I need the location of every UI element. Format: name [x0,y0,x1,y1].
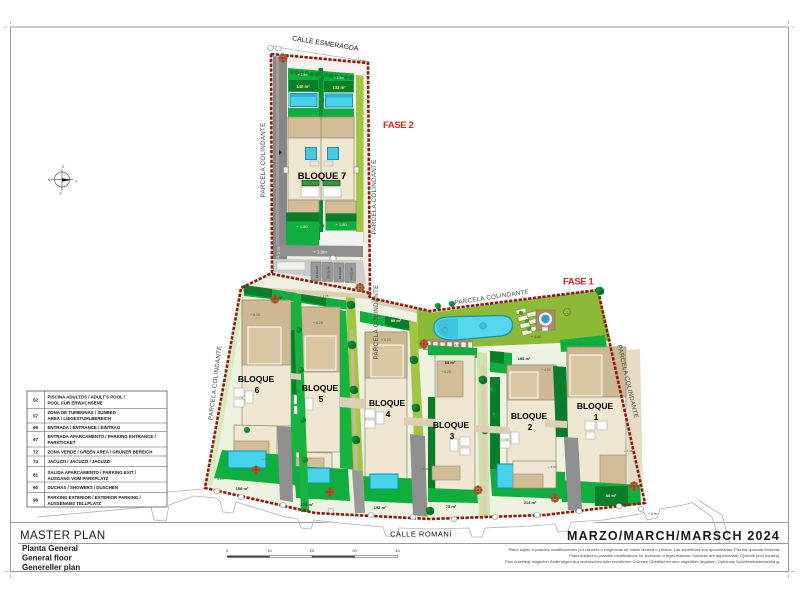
svg-text:PARKTICKET: PARKTICKET [48,440,76,445]
svg-text:6: 6 [255,385,260,395]
svg-text:2: 2 [528,422,533,432]
svg-text:BLOQUE: BLOQUE [238,374,275,384]
svg-text:BLOQUE: BLOQUE [369,398,406,408]
svg-text:57: 57 [33,414,39,419]
svg-text:MASTER PLAN: MASTER PLAN [20,530,106,542]
svg-text:+ 5.00: + 5.00 [420,467,429,471]
svg-text:Plans subject to possible modi: Plans subject to possible modifications … [569,553,780,558]
svg-text:AUSGANG VOM PARKPLATZ: AUSGANG VOM PARKPLATZ [48,476,109,481]
svg-text:E: E [75,180,78,184]
svg-text:+ 5.44: + 5.44 [624,449,633,453]
svg-text:72: 72 [565,311,569,315]
svg-text:+ 5.00: + 5.00 [548,465,557,469]
svg-text:CALLE ESMERAGDA: CALLE ESMERAGDA [292,35,360,52]
svg-text:PISCINA ADULTOS / ADULT'S POO: PISCINA ADULTOS / ADULT'S POOL / [48,395,126,400]
svg-text:Genereller plan: Genereller plan [22,563,80,572]
svg-text:75 m²: 75 m² [446,504,457,509]
svg-text:JACUZZI / JACUZZI / JACUZZI: JACUZZI / JACUZZI / JACUZZI [48,459,111,464]
svg-text:5: 5 [319,394,324,404]
svg-text:1: 1 [594,412,599,422]
svg-text:SALIDA APARCAMENTO / PARKING E: SALIDA APARCAMENTO / PARKING EXIT / [48,470,137,475]
svg-text:+ 6.25: + 6.25 [381,338,391,342]
svg-text:+ 3.0m: + 3.0m [313,250,327,255]
svg-text:ENTRADA / ENTRANCE / EINTRAG: ENTRADA / ENTRANCE / EINTRAG [48,425,121,430]
svg-text:+ 4.40: + 4.40 [531,335,541,339]
svg-text:N: N [48,178,51,182]
svg-text:4: 4 [386,409,391,419]
svg-text:DUCHAS / SHOWERS / DUSCHEN: DUCHAS / SHOWERS / DUSCHEN [48,485,119,490]
svg-text:86 m²: 86 m² [606,493,617,498]
svg-text:CALLE ROMANÍ: CALLE ROMANÍ [390,530,452,539]
svg-text:158 m²: 158 m² [236,486,249,491]
svg-text:+ 6.25: + 6.25 [313,321,323,325]
svg-text:BLOQUE: BLOQUE [511,411,548,421]
svg-text:66: 66 [33,425,39,430]
svg-text:BLOQUE: BLOQUE [577,401,614,411]
svg-text:AUSSENABS TELLPLATZ: AUSSENABS TELLPLATZ [48,501,102,506]
svg-text:30: 30 [352,548,357,553]
svg-text:99 m²: 99 m² [391,318,402,323]
svg-text:Planta General: Planta General [22,544,78,553]
svg-text:96: 96 [33,498,39,503]
svg-text:BLOQUE: BLOQUE [302,383,339,393]
svg-text:APTO 03: APTO 03 [338,267,342,280]
svg-text:+ 5.00: + 5.00 [214,477,224,481]
svg-text:PARCELA COLINDANTE: PARCELA COLINDANTE [373,284,380,359]
svg-text:AREA / LIEGESTUHLBEREICH: AREA / LIEGESTUHLBEREICH [48,416,112,421]
svg-text:+ 1.5m: + 1.5m [334,76,344,80]
svg-text:178 m²: 178 m² [301,502,314,507]
svg-text:+ 4.25: + 4.25 [320,294,329,298]
svg-text:ENTRADA APARCAMENTO / PARKING: ENTRADA APARCAMENTO / PARKING ENTRANCE / [48,434,157,439]
svg-text:214 m²: 214 m² [524,500,537,505]
svg-text:BLOQUE: BLOQUE [433,420,470,430]
svg-text:67: 67 [33,437,39,442]
svg-text:+ 4.40: + 4.40 [452,343,461,347]
svg-text:+ 5.17: + 5.17 [300,508,309,512]
svg-text:90: 90 [33,485,39,490]
svg-text:PARCELA COLINDANTE: PARCELA COLINDANTE [371,159,378,234]
svg-text:+ 4.90: + 4.90 [541,368,551,372]
svg-text:74: 74 [33,459,39,464]
svg-text:+ 6.25: + 6.25 [250,313,260,317]
svg-text:133 m²: 133 m² [332,85,346,90]
svg-text:40: 40 [395,548,400,553]
svg-text:PARCELA COLINDANTE: PARCELA COLINDANTE [260,122,267,197]
svg-text:APTO 04: APTO 04 [350,267,354,280]
svg-text:Plan unterliegt möglicher Ände: Plan unterliegt möglicher Änderungen aus… [505,559,780,564]
svg-text:+ 1.5m: + 1.5m [298,73,308,77]
svg-text:+ 3.75: + 3.75 [277,247,281,258]
svg-text:20: 20 [310,548,315,553]
svg-text:PARKING EXTERIOR / EXTERIOR PA: PARKING EXTERIOR / EXTERIOR PARKING / [48,495,142,500]
svg-text:APTO 01: APTO 01 [315,266,319,279]
svg-text:S: S [59,192,62,196]
svg-text:POOL FÜR ERWACHSENE: POOL FÜR ERWACHSENE [48,401,103,406]
svg-text:+ 5.06: + 5.06 [338,469,347,473]
svg-text:64 m²: 64 m² [445,360,456,365]
svg-text:+ 4.27: + 4.27 [262,457,271,461]
svg-text:FASE 1: FASE 1 [563,277,594,288]
svg-text:FASE 2: FASE 2 [383,120,413,131]
svg-text:+ 1.50: + 1.50 [335,222,347,227]
svg-text:O: O [62,165,65,169]
svg-text:140 m²: 140 m² [296,84,310,89]
svg-text:ZONA DE TUMBONAS / SUNBED: ZONA DE TUMBONAS / SUNBED [48,410,116,415]
svg-text:+ 6.25: + 6.25 [441,370,451,374]
svg-text:General floor: General floor [22,554,72,563]
svg-text:+ 4.25: + 4.25 [256,288,265,292]
svg-text:+ 1.50: + 1.50 [296,224,308,229]
svg-text:3: 3 [450,431,455,441]
svg-text:72: 72 [33,450,39,455]
svg-text:MARZO/MARCH/MARSCH 2024: MARZO/MARCH/MARSCH 2024 [567,529,780,543]
svg-text:0: 0 [226,548,229,553]
svg-text:+ 4.60: + 4.60 [573,342,583,346]
svg-text:Plano sujeto a posibles modifi: Plano sujeto a posibles modificaciones p… [509,547,781,552]
svg-text:ZONA VERDE / GREEN AREA / GRÜN: ZONA VERDE / GREEN AREA / GRÜNER BEREICH [48,450,153,455]
svg-text:81: 81 [33,473,39,478]
svg-text:APTO 02: APTO 02 [327,266,331,279]
svg-text:+ 5 m: + 5 m [648,512,657,516]
svg-text:192 m²: 192 m² [374,505,387,510]
svg-text:52: 52 [33,398,39,403]
svg-text:198 m²: 198 m² [518,356,531,361]
svg-text:10: 10 [267,548,272,553]
